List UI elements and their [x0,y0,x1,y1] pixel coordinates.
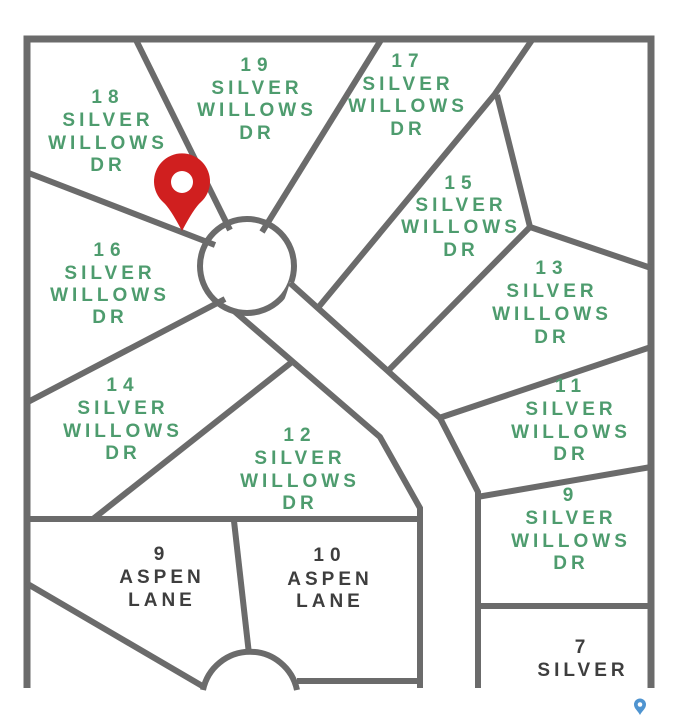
svg-text:SILVER: SILVER [525,399,616,420]
plat-map: 18 SILVER WILLOWS DR 19 SILVER WILLOWS D… [0,0,677,720]
svg-text:14: 14 [106,375,139,396]
svg-text:WILLOWS: WILLOWS [48,133,168,154]
svg-text:15: 15 [444,173,477,194]
svg-text:SILVER: SILVER [415,195,506,216]
svg-text:SILVER: SILVER [537,660,628,681]
plat-map-svg: 18 SILVER WILLOWS DR 19 SILVER WILLOWS D… [0,0,677,720]
lot-label-18: 18 SILVER WILLOWS DR [48,87,168,176]
cul-de-sac-circle [200,219,294,313]
svg-text:10: 10 [313,545,346,566]
aspen-cul-de-sac-arc [203,652,297,690]
lot-label-10-aspen: 10 ASPEN LANE [287,545,372,612]
lot-label-13: 13 SILVER WILLOWS DR [492,258,612,348]
svg-text:SILVER: SILVER [254,448,345,469]
svg-text:DR: DR [534,327,569,348]
svg-text:11: 11 [555,376,587,397]
svg-text:LANE: LANE [128,590,196,611]
svg-text:12: 12 [283,425,316,446]
svg-text:SILVER: SILVER [211,78,302,99]
lot-label-19: 19 SILVER WILLOWS DR [197,55,317,144]
svg-text:DR: DR [282,493,317,514]
red-pin-hole [171,171,193,193]
svg-text:19: 19 [240,55,273,76]
svg-text:SILVER: SILVER [525,508,616,529]
red-location-pin [154,153,210,231]
svg-text:SILVER: SILVER [362,74,453,95]
svg-text:DR: DR [553,444,588,465]
lot-boundary-19-17 [262,40,381,232]
lot-boundary-9-10-aspen [234,521,249,654]
blue-mini-pin [634,699,646,716]
svg-text:SILVER: SILVER [506,281,597,302]
svg-text:WILLOWS: WILLOWS [197,100,317,121]
blue-mini-pin-hole [638,702,643,707]
svg-text:ASPEN: ASPEN [119,567,204,588]
svg-text:WILLOWS: WILLOWS [511,422,631,443]
lot-label-9-silver-willows: 9 SILVER WILLOWS DR [511,485,631,574]
lot-label-14: 14 SILVER WILLOWS DR [63,375,183,464]
svg-text:9: 9 [154,544,171,565]
svg-text:DR: DR [239,123,274,144]
svg-text:DR: DR [105,443,140,464]
green-lot-labels: 18 SILVER WILLOWS DR 19 SILVER WILLOWS D… [48,51,631,574]
svg-text:SILVER: SILVER [64,263,155,284]
svg-text:17: 17 [391,51,424,72]
svg-text:7: 7 [575,637,592,658]
svg-text:SILVER: SILVER [77,398,168,419]
svg-text:WILLOWS: WILLOWS [63,421,183,442]
svg-text:9: 9 [563,485,580,506]
svg-text:WILLOWS: WILLOWS [240,471,360,492]
svg-text:ASPEN: ASPEN [287,569,372,590]
svg-text:DR: DR [90,155,125,176]
svg-text:LANE: LANE [296,591,364,612]
svg-text:WILLOWS: WILLOWS [348,96,468,117]
svg-text:DR: DR [390,119,425,140]
svg-text:WILLOWS: WILLOWS [511,531,631,552]
lot-label-12: 12 SILVER WILLOWS DR [240,425,360,514]
dark-lot-labels: 9 ASPEN LANE 10 ASPEN LANE 7 SILVER [119,544,628,681]
svg-text:DR: DR [443,240,478,261]
svg-text:16: 16 [93,240,126,261]
svg-text:WILLOWS: WILLOWS [50,285,170,306]
lot-label-7-silver: 7 SILVER [537,637,628,681]
svg-text:18: 18 [91,87,124,108]
lot-label-16: 16 SILVER WILLOWS DR [50,240,170,328]
svg-text:WILLOWS: WILLOWS [492,304,612,325]
svg-text:13: 13 [535,258,568,279]
svg-text:WILLOWS: WILLOWS [401,217,521,238]
svg-text:DR: DR [553,553,588,574]
svg-text:DR: DR [92,307,127,328]
lot-label-9-aspen: 9 ASPEN LANE [119,544,204,611]
svg-text:SILVER: SILVER [62,110,153,131]
